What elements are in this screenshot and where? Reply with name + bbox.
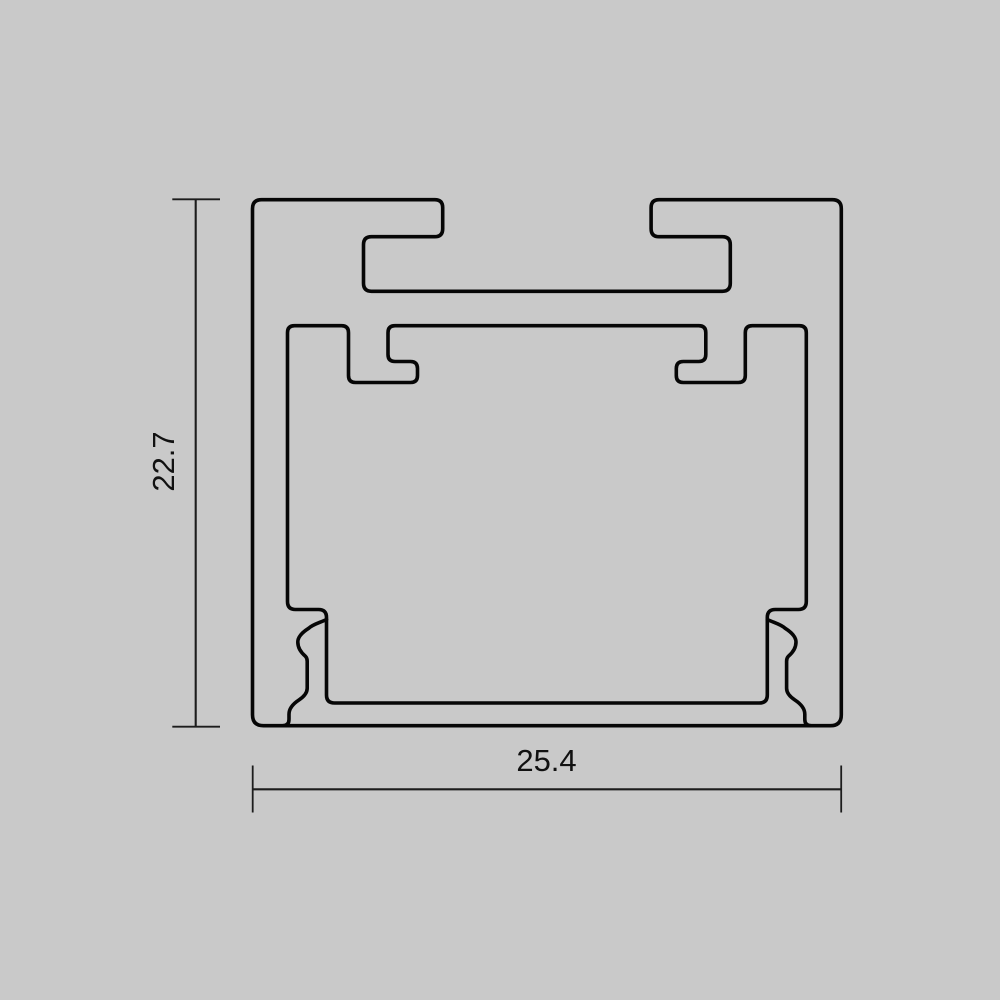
width-dimension-label: 25.4	[516, 743, 576, 778]
drawing-background	[0, 0, 1000, 1000]
profile-cross-section-drawing: 22.7 25.4	[0, 0, 1000, 1000]
height-dimension-label: 22.7	[146, 431, 181, 491]
technical-drawing-canvas: 22.7 25.4	[0, 0, 1000, 1000]
